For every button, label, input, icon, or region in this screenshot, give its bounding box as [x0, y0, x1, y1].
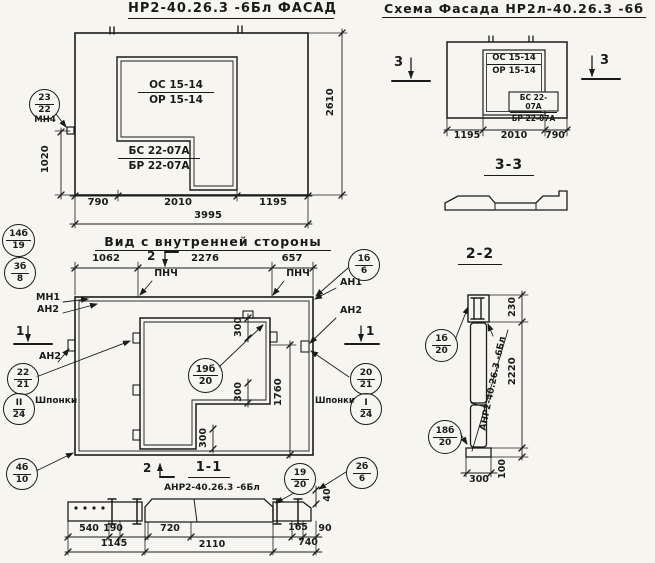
key-mark: [301, 341, 309, 352]
dim-300-mid: 300: [234, 372, 244, 412]
anchor-label-mn4: МН4: [28, 116, 62, 125]
dim-300-top: 300: [234, 307, 244, 347]
callout-18b-20: 18б20: [428, 420, 462, 454]
dim-657: 657: [274, 254, 310, 265]
inner-view-title: Вид с внутренней стороны: [95, 235, 331, 251]
dim-1195: 1195: [450, 131, 484, 141]
dim-230: 230: [508, 287, 518, 327]
section-marker-2-top: 2: [147, 250, 155, 263]
sill-series-label: БР 22-07А: [118, 159, 200, 172]
section-marker-3-right: 3: [600, 54, 609, 68]
section-1-1-label: АНР2-40.26.3 -6Бл: [154, 484, 270, 493]
dim-2276: 2276: [187, 254, 223, 265]
callout-3b-8: 3б8: [4, 257, 36, 289]
dim-1145: 1145: [94, 539, 134, 549]
key-mark: [133, 430, 140, 440]
drawing-sheet: НР2-40.26.3 -6Бл ФАСАД ОС 15-14 ОР 15-14…: [0, 0, 655, 563]
pnch-label-left: ПНЧ: [151, 269, 181, 279]
anchor-label-an2: АН2: [34, 305, 62, 315]
dim-1062: 1062: [88, 254, 124, 265]
callout-19-20: 1920: [284, 463, 316, 495]
dim-1195: 1195: [253, 198, 293, 209]
facade-opening-mark: ОС 15-14 ОР 15-14: [138, 79, 214, 106]
schema-sill-mark: БС 22-07А БР 22-07А: [510, 93, 557, 123]
callout-19b-20: 19б20: [188, 358, 223, 393]
callout-20-21: 2021: [350, 363, 382, 395]
callout-1b-20: 1б20: [425, 329, 458, 362]
dim-100: 100: [498, 449, 508, 489]
dim-720: 720: [153, 524, 187, 534]
dim-740: 740: [290, 538, 326, 548]
dim-2010: 2010: [158, 198, 198, 209]
section-marker-3-left: 3: [394, 56, 403, 70]
dim-3995: 3995: [186, 211, 230, 222]
callout-2b-6: 2б6: [346, 457, 378, 489]
dim-165: 165: [282, 523, 314, 533]
dim-1760: 1760: [274, 369, 285, 415]
callout-14b-19: 14б19: [2, 224, 35, 257]
section-2-2-title: 2-2: [458, 247, 502, 265]
dim-2110: 2110: [192, 540, 232, 550]
key-mark: [133, 385, 140, 395]
section-marker-1-left: 1: [16, 325, 24, 338]
section-2-2-top-box: [468, 295, 489, 322]
section-1-1-panel: [145, 499, 273, 522]
dim-90: 90: [312, 524, 338, 534]
section-3-3-title: 3-3: [484, 158, 534, 176]
section-marker-1-right: 1: [366, 325, 374, 338]
dim-2610: 2610: [326, 82, 337, 122]
shponki-label-left: Шпонки: [35, 397, 77, 406]
dim-2220: 2220: [508, 348, 519, 394]
callout-4b-10: 4б10: [6, 458, 38, 490]
section-marker-2-bottom: 2: [143, 462, 151, 475]
facade-sill-mark: БС 22-07А БР 22-07А: [118, 145, 200, 172]
key-mark: [133, 333, 140, 343]
section-1-1-title: 1-1: [188, 461, 230, 478]
shponki-label-right: Шпонки: [315, 397, 355, 406]
facade-title: НР2-40.26.3 -6Бл ФАСАД: [128, 2, 334, 19]
section-2-2-body-upper: [471, 323, 487, 403]
pnch-label-right: ПНЧ: [283, 269, 313, 279]
dim-300-width: 300: [463, 475, 495, 485]
callout-22-21: 2221: [7, 363, 39, 395]
callout-I-24: I24: [350, 393, 382, 425]
opening-series-label: ОР 15-14: [138, 93, 214, 106]
dim-2010: 2010: [494, 131, 534, 141]
dim-1020: 1020: [41, 139, 52, 179]
dim-300-bot: 300: [199, 418, 209, 458]
dim-790: 790: [541, 131, 569, 141]
callout-1b-6: 1б6: [348, 249, 380, 281]
anchor-label-an2: АН2: [337, 306, 365, 316]
section-3-3-profile: [445, 191, 567, 210]
anchor-label-an2: АН2: [36, 352, 64, 362]
opening-series-label: ОС 15-14: [138, 79, 214, 93]
dim-790: 790: [81, 198, 115, 209]
section-1-1-left-block: [68, 502, 142, 521]
key-mark: [270, 332, 277, 342]
schema-title: Схема Фасада НР2л-40.26.3 -6б: [382, 2, 646, 18]
schema-opening-mark: ОС 15-14 ОР 15-14: [487, 53, 541, 76]
dim-40: 40: [323, 477, 333, 513]
callout-II-24: II24: [3, 393, 35, 425]
sill-series-label: БС 22-07А: [118, 145, 200, 159]
dim-190: 190: [99, 524, 127, 534]
anchor-label-mn1: МН1: [34, 293, 62, 303]
